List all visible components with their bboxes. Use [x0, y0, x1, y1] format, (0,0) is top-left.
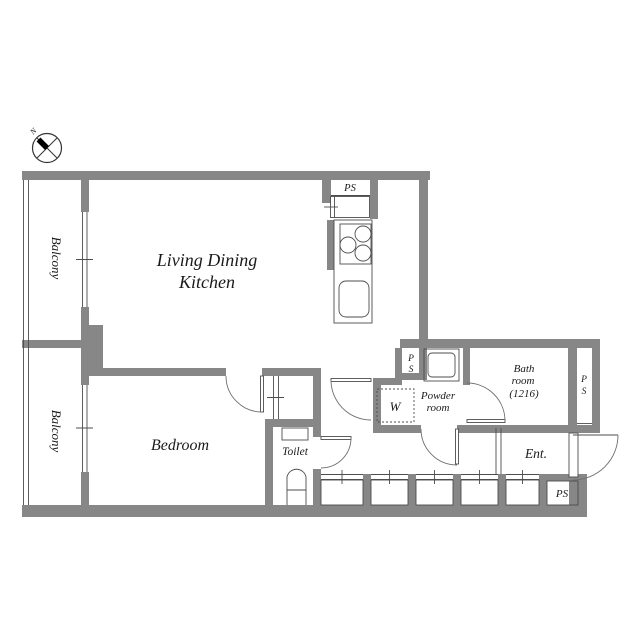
balcony-upper-label: Balcony [49, 237, 64, 280]
bath-label-line2: room [512, 375, 535, 387]
entrance-label: Ent. [524, 446, 547, 461]
ps-bottom-label: PS [555, 488, 569, 500]
powder-label-line2: room [427, 402, 450, 414]
refrigerator-niche [324, 197, 370, 218]
toilet-label: Toilet [282, 446, 309, 458]
floor-plan: N Living Dining Kitchen Bedroom Balcony … [0, 0, 640, 640]
bath-label-line1: Bath [514, 363, 535, 375]
ldk-hall-door [331, 379, 371, 421]
powder-label-line1: Powder [420, 390, 456, 402]
balcony-lower-label: Balcony [49, 410, 64, 453]
bedroom-closet-door [267, 376, 284, 419]
bedroom-door [226, 376, 264, 412]
toilet-door [321, 437, 351, 469]
compass-icon: N [28, 126, 62, 163]
vanity-sink-icon [424, 349, 459, 381]
bath-door [467, 383, 505, 423]
ps-mid-s: S [409, 365, 414, 375]
washer-label: W [390, 399, 402, 414]
ps-mid-p: P [407, 354, 414, 364]
ldk-label-line1: Living Dining [156, 250, 258, 270]
sink-icon [339, 281, 369, 317]
entrance-door [569, 433, 618, 480]
compass-north-label: N [28, 126, 39, 137]
bedroom-label: Bedroom [151, 437, 209, 454]
ps-kitchen-label: PS [343, 183, 356, 194]
ps-right-p: P [580, 375, 587, 385]
walls [22, 171, 600, 517]
entrance-step-edge [496, 428, 501, 474]
powder-room-door [421, 429, 459, 465]
stove-icon [340, 224, 371, 264]
bedroom-window-icon [76, 385, 93, 472]
bath-label-line3: (1216) [509, 388, 539, 400]
toilet-fixture-icon [282, 428, 308, 505]
ps-right-s: S [582, 387, 587, 397]
ldk-label-line2: Kitchen [178, 272, 235, 292]
ldk-window-icon [76, 212, 93, 307]
floor-plan-canvas: N Living Dining Kitchen Bedroom Balcony … [0, 0, 640, 640]
